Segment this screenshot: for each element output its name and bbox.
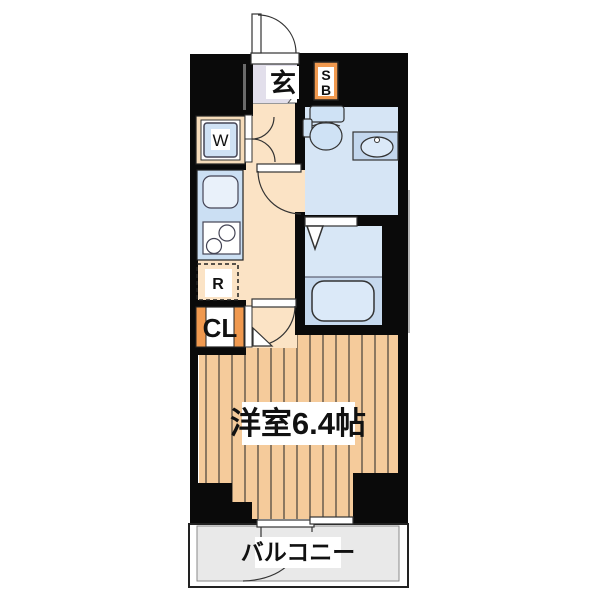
stove-burner-2 [207, 239, 222, 254]
bath-door-rail [305, 217, 357, 226]
wall-bath-bottom [295, 325, 408, 335]
shoe-box: S B [314, 62, 338, 100]
sliding-panel-right [310, 517, 353, 524]
vanity-faucet [375, 138, 380, 143]
entrance-label: 玄 [270, 68, 296, 98]
wall-bottom-left-step [232, 502, 252, 525]
closet-side-panel [245, 306, 252, 347]
main-room-door-leaf [252, 299, 296, 307]
toilet-bowl [310, 122, 342, 150]
entrance-threshold [251, 53, 299, 64]
wall-bottom-left-block [190, 483, 232, 525]
bathtub [312, 281, 374, 321]
closet: CL [196, 306, 252, 347]
wall-bottom-right-block [353, 473, 408, 525]
wall-below-closet [190, 347, 246, 355]
entrance-door [251, 14, 299, 64]
wall-right-of-bathdoor [357, 217, 382, 226]
shoe-box-label-s: S [321, 67, 330, 83]
vanity-sink [353, 132, 398, 160]
floorplan-page: バルコニー 玄 S B W [0, 0, 600, 600]
stove-burner-1 [219, 225, 235, 241]
sliding-panel-left [257, 520, 314, 527]
floorplan-canvas: バルコニー 玄 S B W [0, 0, 600, 600]
entrance-door-swing-arc [258, 15, 296, 53]
balcony-label: バルコニー [241, 539, 356, 565]
wall-above-closet [190, 300, 246, 307]
washroom-door-leaf [257, 164, 301, 172]
kitchen-sink [203, 176, 238, 208]
washer-label: W [212, 131, 228, 150]
toilet-tank [310, 106, 344, 122]
main-room-label: 洋室6.4帖 [230, 406, 366, 441]
shoe-box-label-b: B [321, 82, 331, 98]
kitchen [197, 170, 243, 260]
closet-label: CL [203, 313, 238, 343]
refrigerator-label: R [212, 276, 224, 293]
pipe-space-mark [243, 64, 246, 110]
wall-bath-right-block [382, 218, 408, 335]
entrance-door-leaf [252, 14, 261, 53]
wall-bath-left [295, 212, 305, 335]
